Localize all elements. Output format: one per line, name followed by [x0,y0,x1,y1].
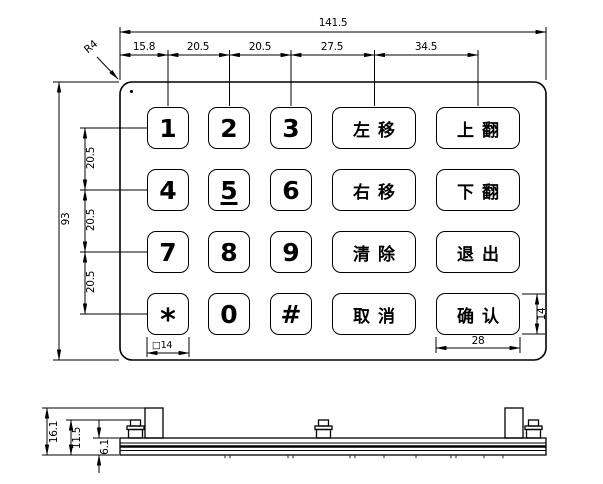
key-page-up: 上翻 [436,107,520,149]
dim-side-stud-height: 11.5 [71,421,83,455]
key-cancel: 取消 [332,293,416,335]
side-block-right [505,408,523,438]
dim-side-plate-thickness: 6.1 [99,430,111,464]
mounting-stud-right [525,420,542,438]
key-5: 5 [208,169,250,211]
key-7: 7 [147,231,189,273]
dim-col-pitch-4: 34.5 [409,41,443,53]
key-move-right: 右移 [332,169,416,211]
mounting-stud-middle [315,420,332,438]
mounting-stud-left [127,420,144,438]
key-move-left: 左移 [332,107,416,149]
dim-row-pitch-1: 20.5 [85,141,97,175]
dim-row-pitch-3: 20.5 [85,265,97,299]
dim-key-size: □14 [144,340,180,352]
key-9: 9 [270,231,312,273]
dim-overall-height: 93 [60,202,72,236]
key-star: * [147,293,189,335]
key-page-down: 下翻 [436,169,520,211]
dim-col-pitch-2: 20.5 [243,41,277,53]
key-1: 1 [147,107,189,149]
key-clear: 清除 [332,231,416,273]
key-2: 2 [208,107,250,149]
key-3: 3 [270,107,312,149]
dim-col-offset: 15.8 [127,41,161,53]
key-8: 8 [208,231,250,273]
dim-col-pitch-3: 27.5 [315,41,349,53]
mark-dot [130,90,133,93]
dim-confirm-width: 28 [461,335,495,347]
dim-row-pitch-2: 20.5 [85,203,97,237]
key-4: 4 [147,169,189,211]
dim-col-pitch-1: 20.5 [181,41,215,53]
side-block-left [145,408,163,438]
dim-confirm-height: 14 [536,297,548,331]
dim-side-overall-height: 16.1 [48,415,60,449]
key-exit: 退出 [436,231,520,273]
key-confirm: 确认 [436,293,520,335]
key-0: 0 [208,293,250,335]
key-6: 6 [270,169,312,211]
dim-overall-width: 141.5 [313,17,353,29]
key-hash: # [270,293,312,335]
side-view [120,408,546,458]
keypad-engineering-drawing: 1 2 3 左移 上翻 4 5 6 右移 下翻 7 8 9 清除 退出 * 0 … [0,0,603,484]
